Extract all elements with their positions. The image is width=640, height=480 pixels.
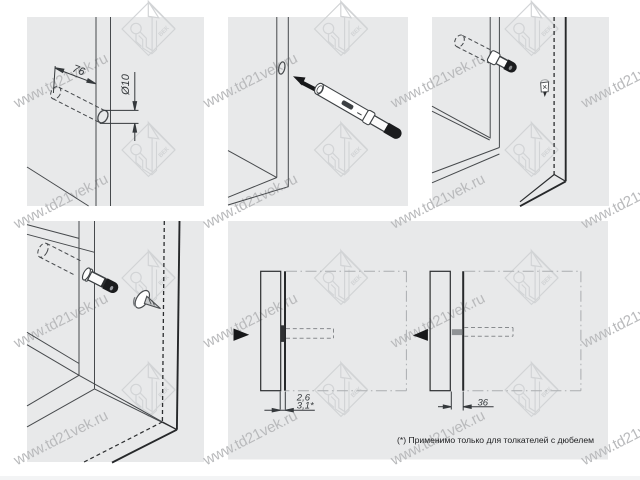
- svg-text:36: 36: [478, 398, 489, 409]
- svg-text:(*) Применимо только для толка: (*) Применимо только для толкателей с дю…: [397, 435, 594, 445]
- svg-text:Ø10: Ø10: [120, 73, 132, 96]
- svg-text:3,1*: 3,1*: [297, 401, 314, 412]
